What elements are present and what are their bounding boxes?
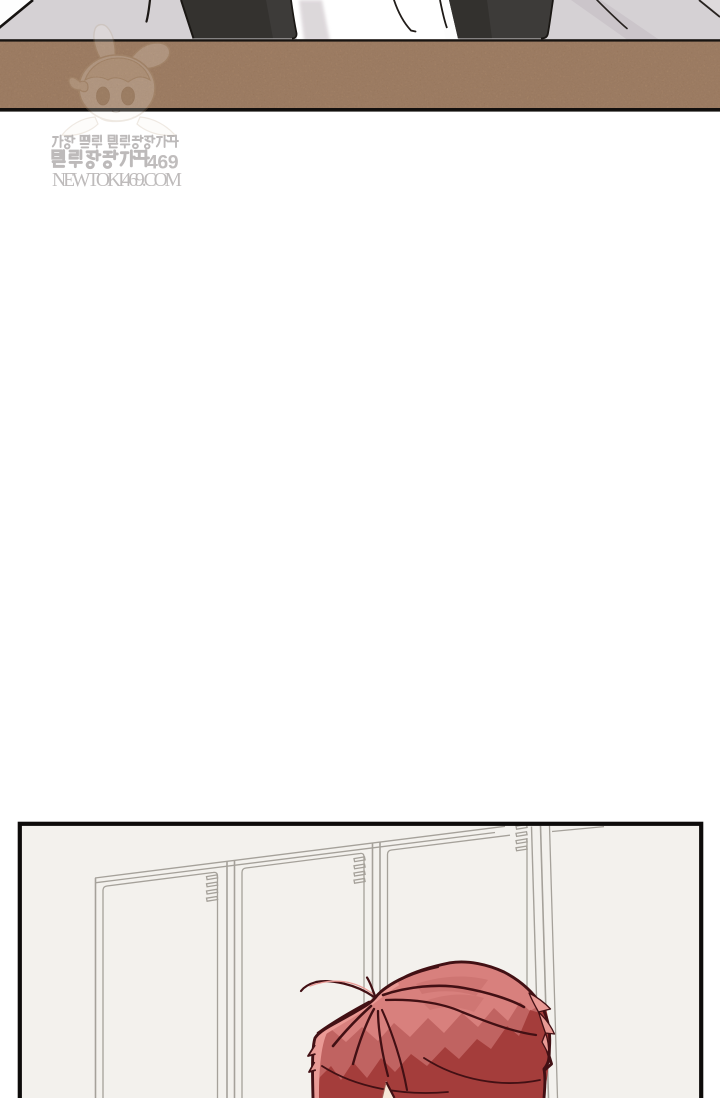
svg-text:NEWTOKI469.COM: NEWTOKI469.COM — [52, 170, 182, 191]
